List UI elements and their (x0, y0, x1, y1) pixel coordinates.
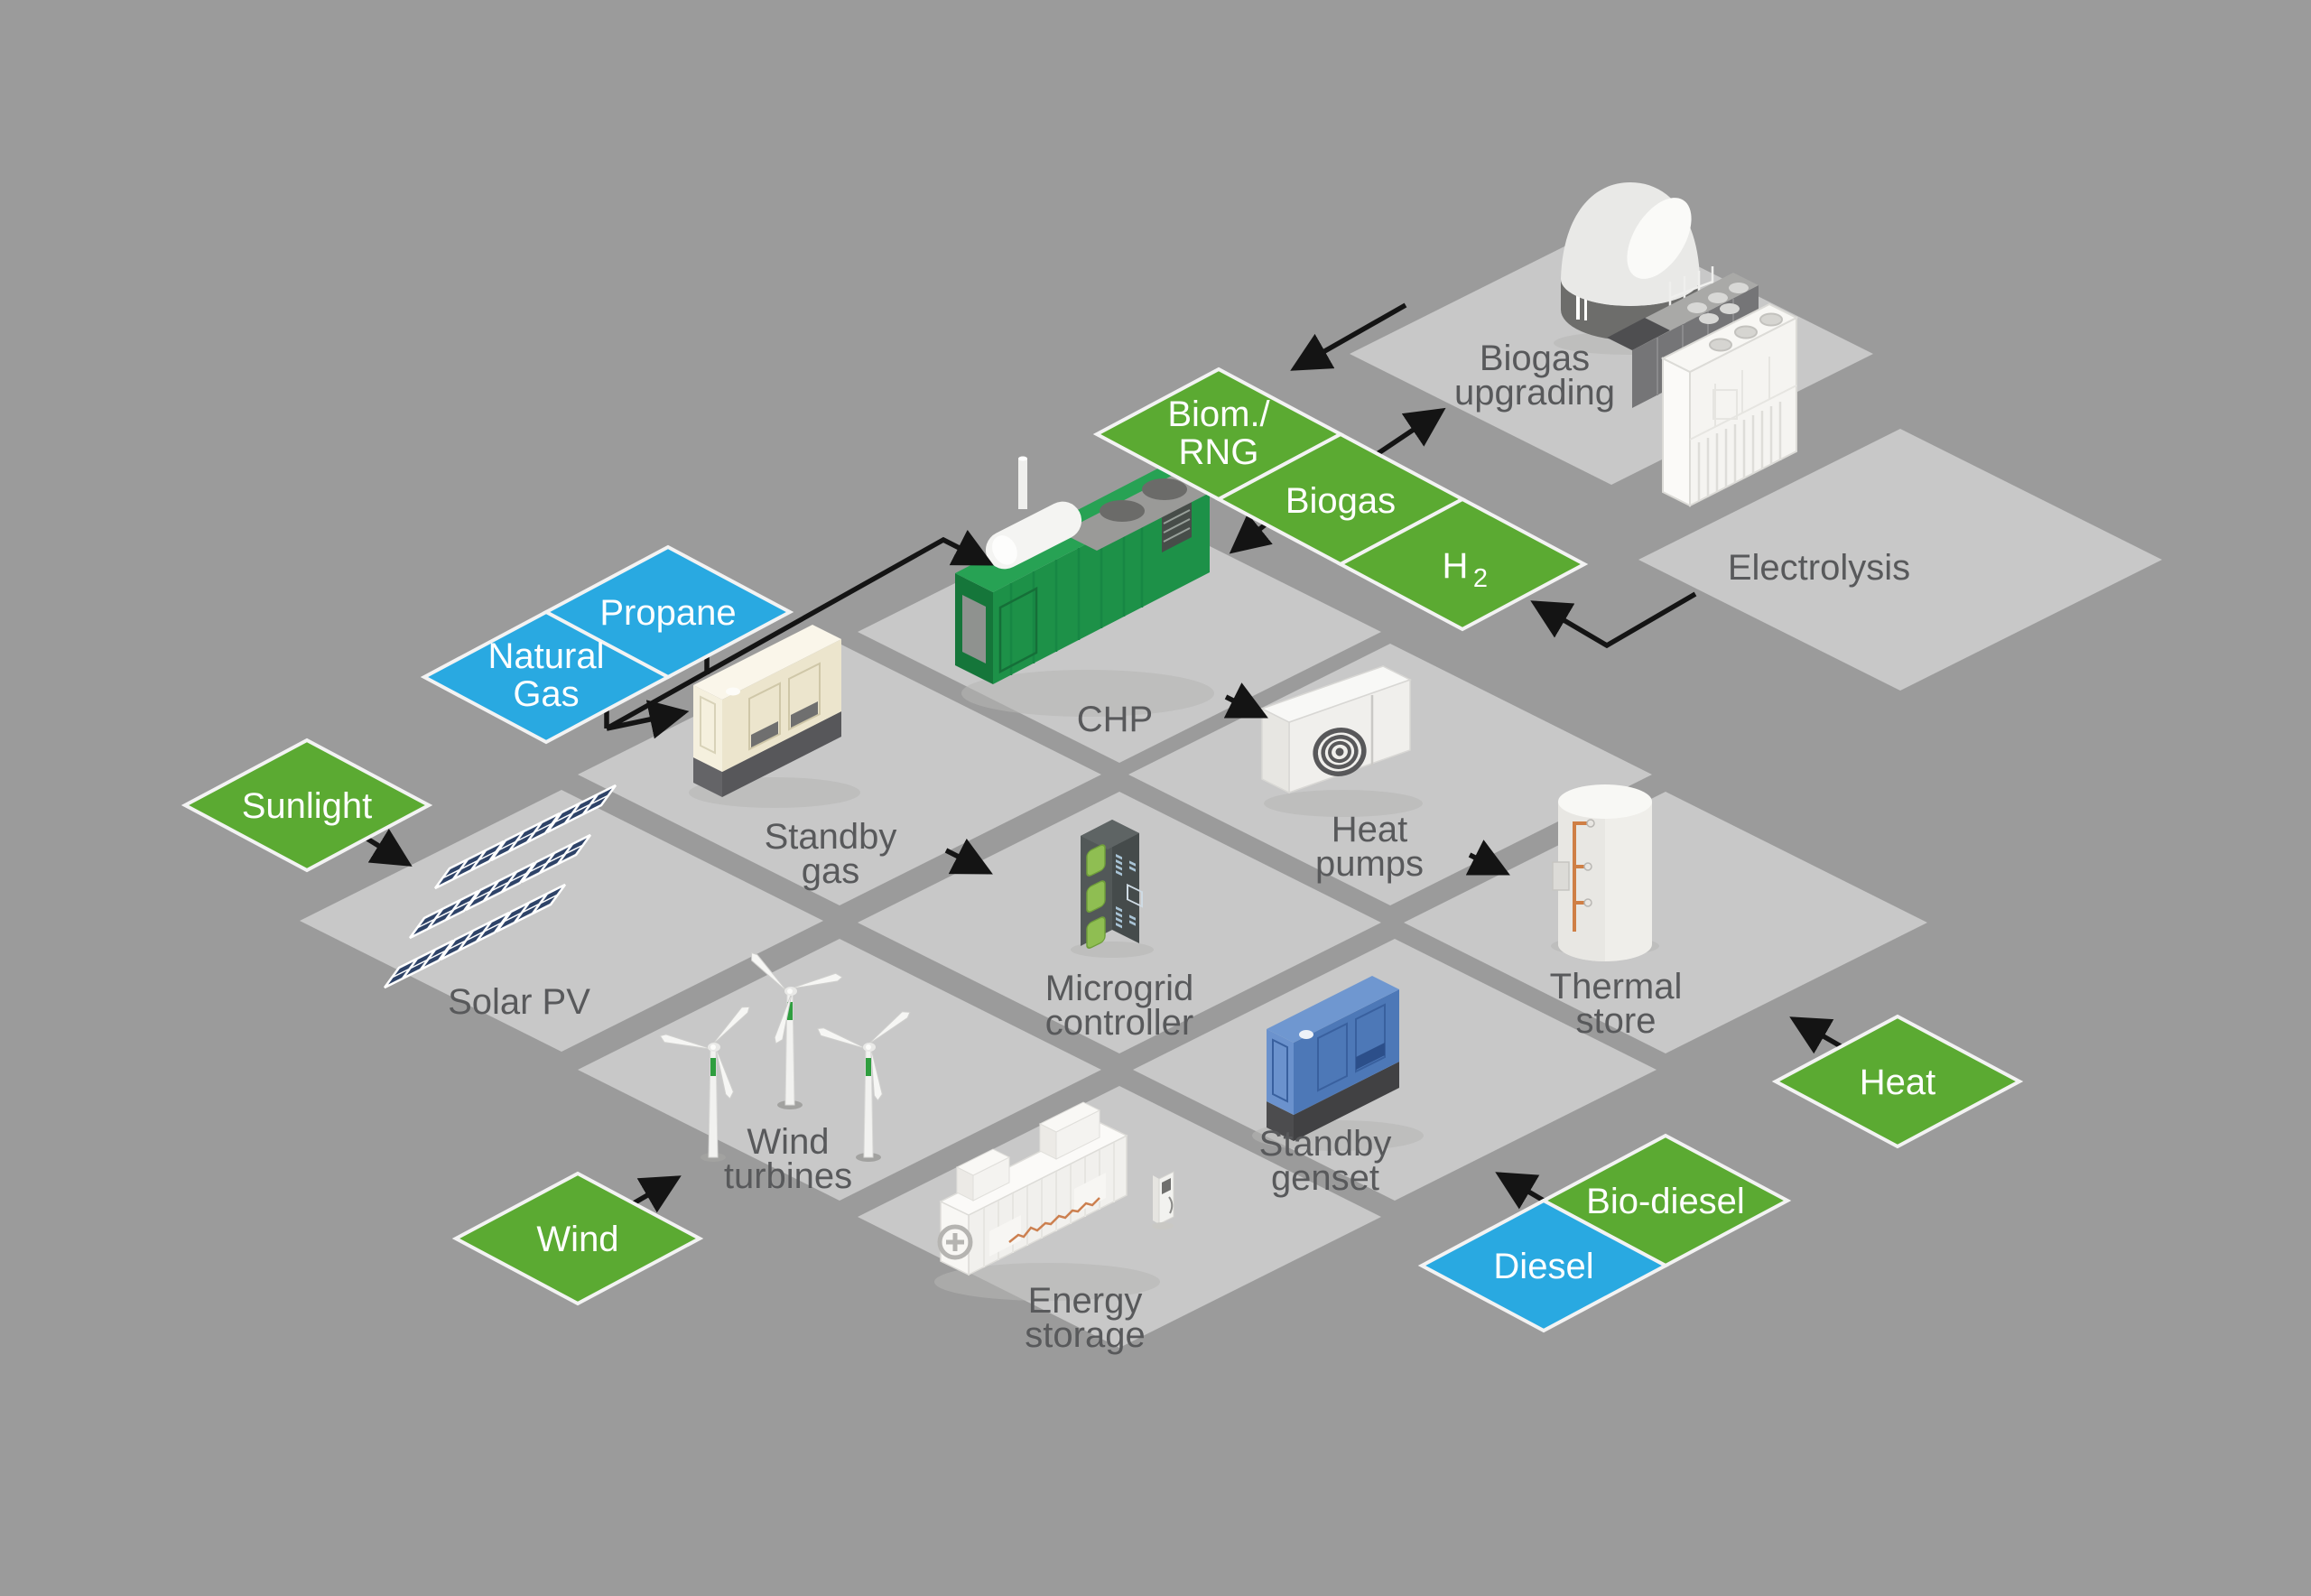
h2-label-subscript: 2 (1473, 564, 1488, 593)
heat-label: Heat (1860, 1062, 1936, 1102)
h2-label-base: H (1443, 546, 1469, 586)
bio-diesel-label: Bio-diesel (1586, 1182, 1745, 1221)
microgrid-diagram: Sunlight Wind Heat Biom./ RNG Biogas H 2… (0, 0, 2311, 1596)
biom-rng-label-line2: RNG (1179, 432, 1259, 472)
natural-gas-label-line1: Natural (488, 636, 605, 676)
wind-label: Wind (536, 1220, 618, 1259)
microgrid-label-line2: controller (1045, 1003, 1194, 1043)
thermal-store-label-line2: store (1576, 1001, 1657, 1041)
standby-genset-label-line2: genset (1271, 1158, 1379, 1198)
microgrid-controller-icon (1081, 820, 1142, 950)
biogas-label: Biogas (1285, 481, 1396, 521)
solar-pv-label: Solar PV (448, 982, 590, 1022)
electrolysis-label: Electrolysis (1728, 548, 1910, 588)
biom-rng-label-line1: Biom./ (1167, 394, 1270, 434)
energy-storage-label-line2: storage (1025, 1315, 1145, 1355)
natural-gas-label-line2: Gas (513, 674, 579, 714)
diagram-canvas: Sunlight Wind Heat Biom./ RNG Biogas H 2… (0, 0, 2311, 1596)
biogas-upgrading-label-line2: upgrading (1454, 373, 1615, 413)
thermal-store-icon (1553, 784, 1652, 961)
chp-label: CHP (1077, 700, 1153, 739)
wind-turbines-label-line2: turbines (724, 1156, 852, 1196)
diesel-label: Diesel (1493, 1247, 1593, 1286)
heat-pumps-label-line2: pumps (1315, 844, 1424, 884)
sunlight-label: Sunlight (242, 786, 373, 826)
propane-label: Propane (599, 593, 736, 633)
standby-gas-label-line2: gas (802, 851, 860, 891)
